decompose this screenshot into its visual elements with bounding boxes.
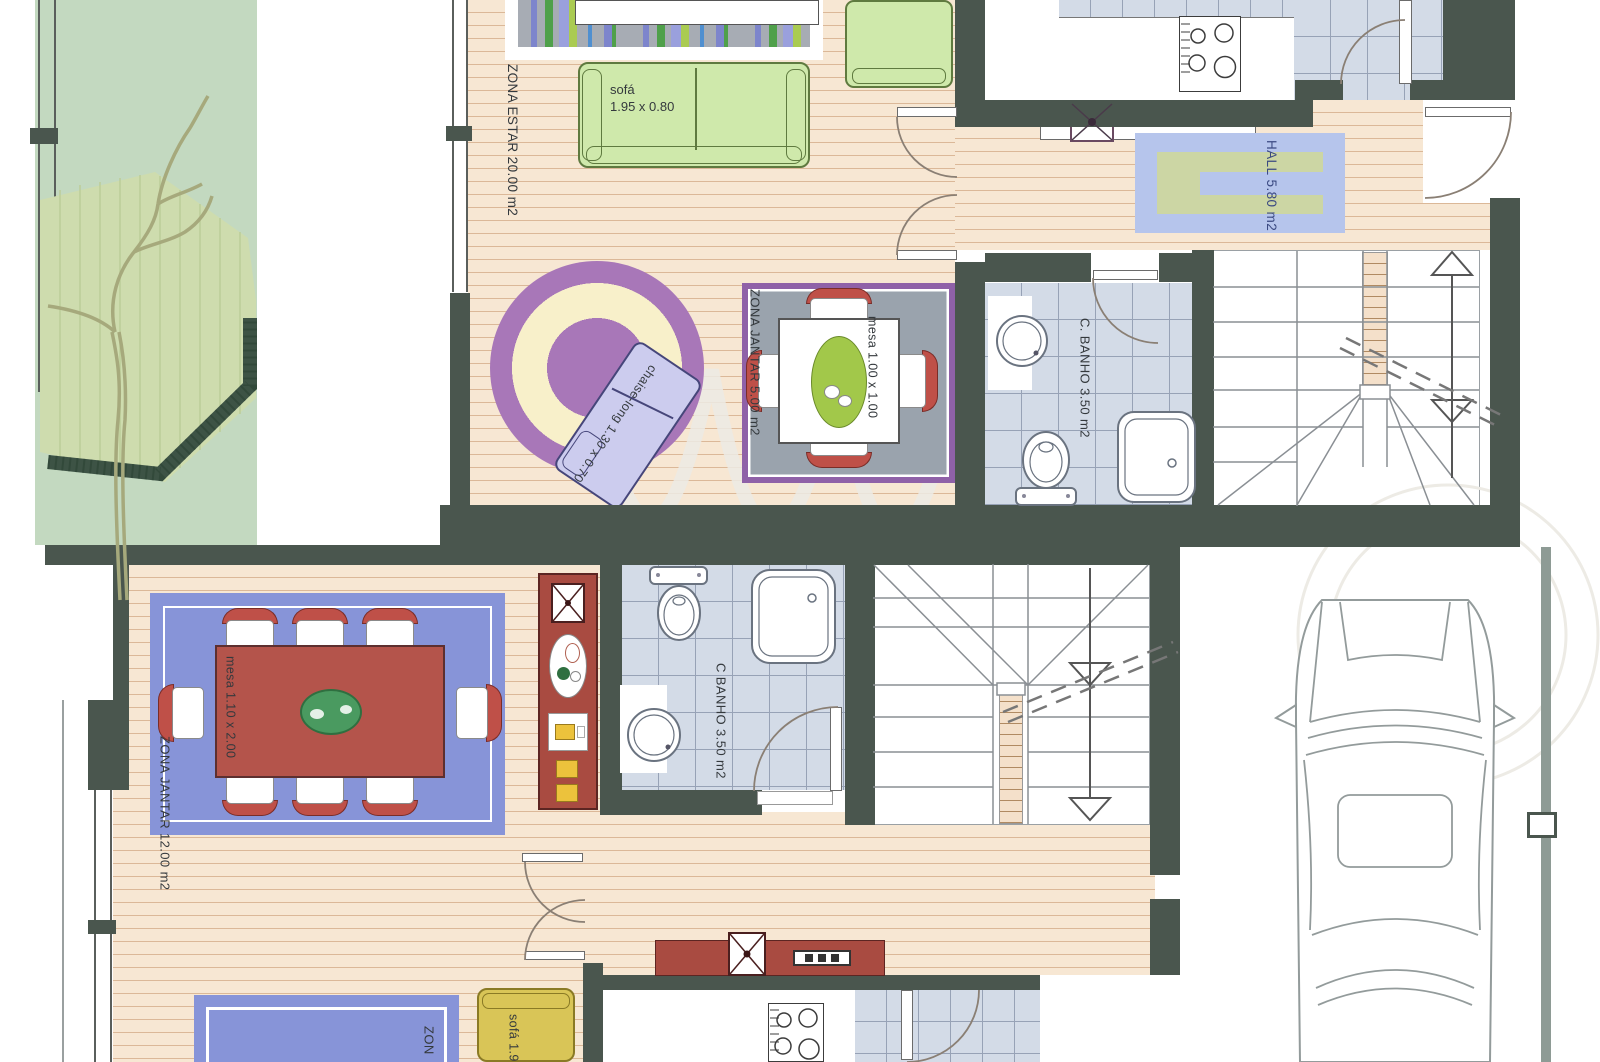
table-name: mesa [224, 656, 238, 688]
room-name: HALL [1264, 140, 1279, 175]
banho-lower-label: C BANHO 3.50 m2 [712, 663, 728, 779]
sink-cross-hall [1072, 104, 1112, 140]
zona-jantar-lower-label: ZONA JANTAR 12.00 m2 [156, 736, 172, 890]
room-area: 3.50 m2 [713, 729, 728, 779]
lower-stairs-lines [873, 564, 1149, 824]
hall-label: HALL 5.80 m2 [1262, 140, 1279, 231]
room-name: ZONA JANTAR [747, 289, 762, 382]
table-name: mesa [866, 316, 880, 348]
room-name: C BANHO [713, 663, 728, 725]
plan-linework [0, 0, 1600, 1062]
upper-stairs-arrows [1432, 252, 1472, 478]
upper-bath-toilet [1016, 432, 1076, 505]
lower-stairs-arrows [1070, 568, 1110, 820]
room-name: C. BANHO [1077, 318, 1092, 384]
lower-bath-toilet [650, 567, 707, 640]
room-area: 5.00 m2 [747, 386, 762, 436]
zona-partial-label: ZON [420, 1026, 436, 1055]
room-name: ZON [421, 1026, 436, 1055]
banho-upper-label: C. BANHO 3.50 m2 [1076, 318, 1092, 438]
upper-bath-shower [1118, 412, 1195, 502]
zona-estar-label: ZONA ESTAR 20.00 m2 [503, 64, 520, 216]
table-dim: 1.00 x 1.00 [866, 352, 880, 418]
sink-cross-corridor [730, 934, 764, 974]
upper-bath-sink [997, 316, 1047, 366]
floor-plan: sofá 1.95 x 0.80 chaise-long 1.30 x 0.70 [0, 0, 1600, 1062]
car [1276, 600, 1514, 1062]
stove-burners-lower [770, 1009, 819, 1059]
lower-bath-shower [752, 570, 835, 663]
room-area: 3.50 m2 [1077, 388, 1092, 438]
room-name: ZONA JANTAR [157, 736, 172, 829]
stove-burners-upper [1181, 24, 1236, 78]
mesa-upper-label: mesa 1.00 x 1.00 [864, 316, 880, 418]
mesa-lower-label: mesa 1.10 x 2.00 [222, 656, 238, 758]
section-cut-dashes-upper [1340, 338, 1501, 425]
garden-lawn [40, 172, 256, 482]
upper-stairs-lines [1213, 251, 1479, 506]
room-area: 5.80 m2 [1264, 180, 1279, 232]
table-dim: 1.10 x 2.00 [224, 692, 238, 758]
lower-bath-sink [628, 709, 680, 761]
sink-cross-sideboard [553, 585, 583, 621]
room-area: 20.00 m2 [505, 157, 520, 217]
room-area: 12.00 m2 [157, 833, 172, 890]
room-name: ZONA ESTAR [505, 64, 520, 153]
zona-jantar-upper-label: ZONA JANTAR 5.00 m2 [746, 289, 762, 436]
